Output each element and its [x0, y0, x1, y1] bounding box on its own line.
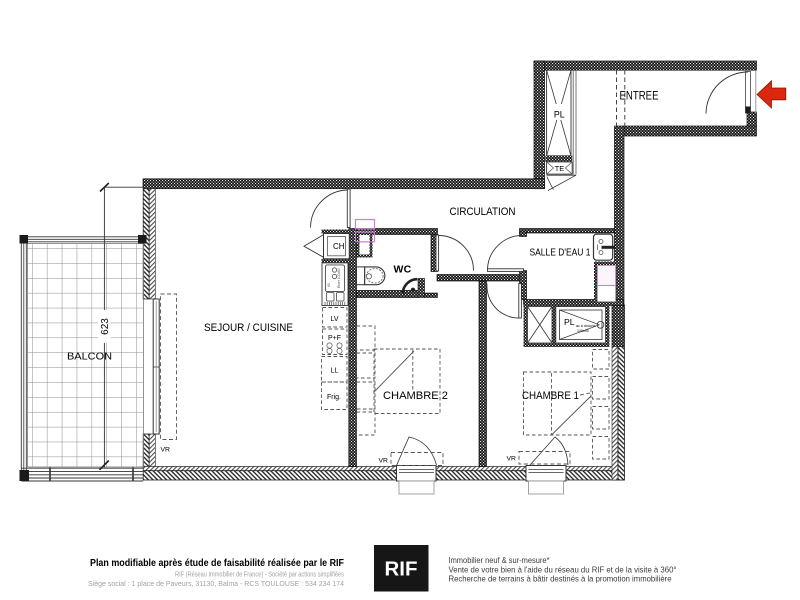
svg-text:VR: VR — [379, 458, 389, 465]
svg-text:Frig.: Frig. — [327, 394, 341, 401]
svg-text:BALCON: BALCON — [67, 351, 112, 363]
svg-text:Siège social : 1 place de Pave: Siège social : 1 place de Paveurs, 31130… — [88, 579, 344, 588]
svg-text:Recherche de terrains à bâtir: Recherche de terrains à bâtir destinés à… — [449, 574, 672, 584]
svg-text:LL: LL — [331, 368, 339, 375]
svg-text:Evier 100x60: Evier 100x60 — [337, 268, 341, 288]
svg-text:RIF: RIF — [385, 559, 418, 581]
svg-text:PL: PL — [554, 110, 565, 120]
svg-text:CHAMBRE 2: CHAMBRE 2 — [383, 390, 448, 402]
svg-text:SEJOUR / CUISINE: SEJOUR / CUISINE — [204, 322, 293, 334]
svg-text:VR: VR — [507, 456, 517, 463]
svg-text:WC: WC — [393, 264, 411, 276]
svg-text:60: 60 — [327, 283, 331, 287]
svg-text:SALLE D'EAU 1: SALLE D'EAU 1 — [530, 248, 591, 259]
svg-text:P+F: P+F — [328, 335, 341, 342]
svg-text:LV: LV — [330, 316, 338, 323]
svg-text:CHAMBRE 1: CHAMBRE 1 — [522, 390, 579, 402]
svg-text:Immobilier neuf & sur-mesure*: Immobilier neuf & sur-mesure* — [449, 555, 551, 565]
svg-text:CIRCULATION: CIRCULATION — [450, 206, 516, 218]
svg-text:623: 623 — [100, 318, 111, 335]
svg-text:PL: PL — [564, 317, 575, 327]
svg-text:CH: CH — [333, 242, 345, 251]
svg-text:ac à douche: ac à douche — [576, 324, 596, 328]
svg-text:TE: TE — [555, 164, 565, 173]
svg-text:ENTREE: ENTREE — [620, 91, 659, 103]
svg-text:120x90: 120x90 — [577, 329, 589, 333]
svg-text:RIF (Réseau Immobilier de Fran: RIF (Réseau Immobilier de France) - Soci… — [175, 570, 344, 579]
svg-text:VR: VR — [161, 447, 171, 454]
svg-text:Plan modifiable après étude de: Plan modifiable après étude de faisabili… — [90, 557, 344, 569]
